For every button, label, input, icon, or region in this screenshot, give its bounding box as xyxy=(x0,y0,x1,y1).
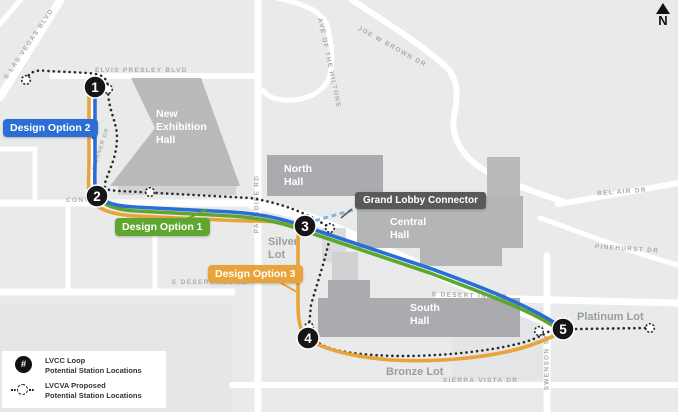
lvcva-station-icon xyxy=(11,384,34,395)
legend-lvcc-line2: Potential Station Locations xyxy=(45,366,142,375)
north-label: N xyxy=(650,14,676,27)
lvcc-station-icon: # xyxy=(15,356,32,373)
legend-lvcva-line2: Potential Station Locations xyxy=(45,391,142,400)
lvcc-loop-map: S LAS VEGAS BLVD ELVIS PRESLEY BLVD JOE … xyxy=(0,0,678,412)
north-arrow: N xyxy=(650,3,676,27)
design-option-2-badge: Design Option 2 xyxy=(3,119,98,137)
annotation-layer: Design Option 2 Design Option 1 Design O… xyxy=(0,0,678,412)
design-option-3-badge: Design Option 3 xyxy=(208,265,303,283)
grand-lobby-connector-badge: Grand Lobby Connector xyxy=(355,192,486,209)
legend: # LVCC Loop Potential Station Locations … xyxy=(2,351,166,408)
design-option-1-badge: Design Option 1 xyxy=(115,218,210,236)
legend-lvcc-line1: LVCC Loop xyxy=(45,356,85,365)
legend-lvcva-line1: LVCVA Proposed xyxy=(45,381,106,390)
